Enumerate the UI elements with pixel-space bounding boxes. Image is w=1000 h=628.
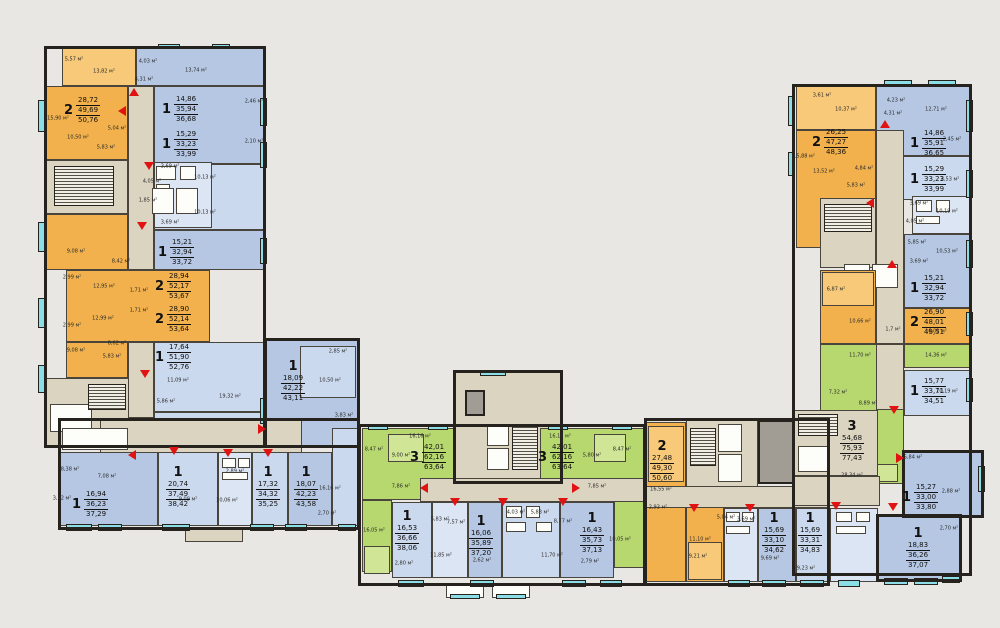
room-area-label: 10,13 м² [194, 211, 216, 216]
balcony [966, 378, 973, 402]
balcony [285, 524, 307, 531]
stairs-icon [88, 384, 126, 410]
room-area-label: 2,46 м² [245, 100, 264, 105]
apartment-rooms-count: 3 [410, 451, 419, 464]
apartment-areas: 28,7249,6950,76 [76, 96, 100, 125]
entrance-arrow-icon [128, 450, 136, 460]
balcony [38, 222, 46, 252]
room-area-label: 19,32 м² [219, 395, 241, 400]
balcony [978, 466, 985, 492]
apartment-areas: 15,7733,7134,51 [922, 377, 946, 406]
apartment-areas: 17,3234,3235,25 [256, 480, 280, 509]
entrance-arrow-icon [450, 498, 460, 506]
apartment-block [364, 546, 390, 574]
apartment-label[interactable]: 342,0162,1663,64 [410, 443, 446, 472]
balcony [38, 100, 46, 132]
room-area-label: 6,87 м² [827, 288, 846, 293]
apartment-rooms-count: 1 [588, 512, 597, 525]
entrance-arrow-icon [129, 88, 139, 96]
room-area-label: 28,34 м² [841, 474, 863, 479]
room-area-label: 3,69 м² [161, 165, 180, 170]
apartment-areas: 15,2933,2333,99 [174, 130, 198, 159]
apartment-label[interactable]: 118,0942,2243,11 [281, 360, 305, 403]
apartment-rooms-count: 1 [264, 466, 273, 479]
entrance-arrow-icon [498, 498, 508, 506]
room-area-label: 12,95 м² [93, 285, 115, 290]
apartment-areas: 14,8635,9136,65 [922, 129, 946, 158]
balcony [562, 580, 586, 587]
floor-plan: 5,57 м² 13,82 м² 4,03 м² 13,74 м² 4,31 м… [0, 0, 1000, 628]
entrance-arrow-icon [572, 483, 580, 493]
apartment-areas: 18,8336,2637,07 [906, 541, 930, 570]
apartment-areas: 15,2132,9433,72 [922, 274, 946, 303]
room-area-label: 3,83 м² [335, 414, 354, 419]
entrance-arrow-icon [880, 120, 890, 128]
apartment-areas: 28,9452,1753,67 [167, 272, 191, 301]
entrance-arrow-icon [887, 260, 897, 268]
balcony [612, 424, 632, 430]
apartment-rooms-count: 1 [902, 491, 911, 504]
room-area-label: 10,05 м² [609, 538, 631, 543]
room-area-label: 9,69 м² [761, 557, 780, 562]
balcony [158, 44, 180, 49]
apartment-label[interactable]: 115,2132,9433,72 [158, 238, 194, 267]
corridor [876, 344, 904, 410]
entrance-arrow-icon [745, 504, 755, 512]
apartment-rooms-count: 2 [155, 313, 164, 326]
balcony [762, 580, 786, 587]
apartment-rooms-count: 1 [403, 510, 412, 523]
room-area-label: 5,80 м² [583, 454, 602, 459]
balcony [480, 370, 506, 376]
apartment-rooms-count: 1 [289, 360, 298, 373]
room-area-label: 13,52 м² [813, 170, 835, 175]
apartment-areas: 15,6933,1034,62 [762, 526, 786, 555]
apartment-rooms-count: 2 [910, 316, 919, 329]
room-area-label: 14,36 м² [925, 354, 947, 359]
apartment-label[interactable]: 226,2547,2748,36 [812, 128, 848, 157]
room-area-label: 2,85 м² [329, 350, 348, 355]
apartment-areas: 15,2733,0033,80 [914, 483, 938, 512]
apartment-block[interactable] [614, 500, 644, 568]
room-area-label: 8,38 м² [61, 468, 80, 473]
room-area-label: 10,66 м² [849, 320, 871, 325]
room-area-label: 4,23 м² [887, 99, 906, 104]
apartment-rooms-count: 2 [155, 280, 164, 293]
apartment-rooms-count: 1 [174, 466, 183, 479]
apartment-label[interactable]: 115,2933,2333,99 [162, 130, 198, 159]
room-area-label: 7,85 м² [588, 485, 607, 490]
elevator [487, 448, 509, 470]
apartment-rooms-count: 1 [162, 138, 171, 151]
room-area-label: 3,52 м² [53, 497, 72, 502]
room-area-label: 4,31 м² [135, 78, 154, 83]
entrance-arrow-icon [118, 106, 126, 116]
room-area-label: 13,82 м² [93, 70, 115, 75]
bathroom-fixture [222, 458, 236, 468]
apartment-label[interactable]: 227,4849,3050,60 [650, 440, 674, 483]
balcony [928, 80, 956, 86]
room-area-label: 11,09 м² [167, 379, 189, 384]
balcony [38, 298, 46, 328]
bathroom-fixture [836, 512, 852, 522]
room-area-label: 8,47 м² [613, 448, 632, 453]
room-area-label: 8,62 м² [108, 342, 127, 347]
entrance-arrow-icon [137, 222, 147, 230]
room-area-label: 10,50 м² [319, 379, 341, 384]
apartment-areas: 16,0635,8937,20 [469, 529, 493, 558]
stairs-icon [824, 204, 872, 232]
room-area-label: 3,61 м² [813, 94, 832, 99]
apartment-areas: 18,0742,2343,58 [294, 480, 318, 509]
entrance-arrow-icon [420, 483, 428, 493]
balcony [966, 312, 973, 336]
apartment-rooms-count: 1 [910, 137, 919, 150]
apartment-label[interactable]: 116,9436,2337,29 [72, 490, 108, 519]
room-area-label: 8,47 м² [365, 448, 384, 453]
balcony [66, 524, 92, 531]
apartment-areas: 54,6875,9377,43 [840, 434, 864, 463]
room-area-label: 8,89 м² [859, 402, 878, 407]
apartment-areas: 42,0162,1663,64 [550, 443, 574, 472]
apartment-label[interactable]: 115,7733,7134,51 [910, 377, 946, 406]
apartment-areas: 17,6451,9052,76 [167, 343, 191, 372]
apartment-areas: 27,4849,3050,60 [650, 454, 674, 483]
room-area-label: 8,42 м² [112, 260, 131, 265]
room-area-label: 7,08 м² [98, 475, 117, 480]
entrance-arrow-icon [888, 503, 898, 511]
room-area-label: 5,83 м² [531, 511, 550, 516]
bathroom-fixture [536, 522, 552, 532]
apartment-label[interactable]: 115,6933,3134,83 [798, 512, 822, 555]
room-area-label: 7,86 м² [392, 485, 411, 490]
room-area-label: 9,00 м² [392, 454, 411, 459]
balcony [548, 424, 568, 430]
room-area-label: 9,08 м² [67, 349, 86, 354]
apartment-areas: 26,2547,2748,36 [824, 128, 848, 157]
apartment-label[interactable]: 115,6933,1034,62 [762, 512, 786, 555]
room-area-label: 4,05 м² [143, 180, 162, 185]
room-area-label: 10,50 м² [67, 136, 89, 141]
entrance-porch [185, 528, 243, 542]
balcony [398, 580, 424, 587]
balcony [838, 580, 860, 587]
room-area-label: 4,31 м² [884, 112, 903, 117]
apartment-rooms-count: 2 [658, 440, 667, 453]
bathroom-cluster [432, 502, 468, 578]
apartment-rooms-count: 2 [812, 136, 821, 149]
apartment-rooms-count: 1 [914, 527, 923, 540]
room-area-label: 5,83 м² [97, 146, 116, 151]
stairs-icon [798, 414, 838, 436]
apartment-label[interactable]: 115,2933,2333,99 [910, 165, 946, 194]
room-area-label: 11,70 м² [849, 354, 871, 359]
apartment-areas: 16,9436,2337,29 [84, 490, 108, 519]
room-area-label: 2,62 м² [473, 559, 492, 564]
apartment-label[interactable]: 342,0162,1663,64 [538, 443, 574, 472]
room-area-label: 4,84 м² [855, 167, 874, 172]
balcony [914, 578, 938, 585]
apartment-areas: 28,9052,1453,64 [167, 305, 191, 334]
room-area-label: 2,88 м² [942, 490, 961, 495]
room-area-label: 4,03 м² [507, 511, 526, 516]
apartment-rooms-count: 3 [538, 451, 547, 464]
room-area-label: 11,70 м² [541, 554, 563, 559]
room-area-label: 3,69 м² [161, 221, 180, 226]
apartment-areas: 16,5336,6638,06 [395, 524, 419, 553]
balcony [162, 524, 190, 531]
entrance-arrow-icon [223, 449, 233, 457]
entrance-arrow-icon [866, 198, 874, 208]
room-area-label: 2,99 м² [63, 276, 82, 281]
apartment-label[interactable]: 117,6451,9052,76 [155, 343, 191, 372]
elevator [487, 424, 509, 446]
apartment-rooms-count: 1 [910, 173, 919, 186]
apartment-label[interactable]: 228,7249,6950,76 [64, 96, 100, 125]
entrance-arrow-icon [831, 502, 841, 510]
apartment-rooms-count: 2 [64, 104, 73, 117]
apartment-label[interactable]: 116,4335,7337,13 [580, 512, 604, 555]
apartment-label[interactable]: 116,5336,6638,06 [395, 510, 419, 553]
apartment-label[interactable]: 114,8635,9136,65 [910, 129, 946, 158]
room-area-label: 2,10 м² [245, 140, 264, 145]
entrance-arrow-icon [896, 453, 904, 463]
balcony [966, 170, 973, 198]
balcony [788, 96, 795, 126]
balcony [368, 424, 388, 430]
bathroom-fixture [238, 458, 250, 468]
room-area-label: 7,32 м² [829, 391, 848, 396]
balcony [966, 240, 973, 268]
room-area-label: 8,77 м² [554, 520, 573, 525]
apartment-label[interactable]: 117,3234,3235,25 [256, 466, 280, 509]
bathroom-fixture [836, 526, 866, 534]
room-area-label: 2,70 м² [940, 527, 959, 532]
ventilation-shaft [465, 390, 485, 416]
apartment-rooms-count: 1 [806, 512, 815, 525]
entrance-arrow-icon [689, 504, 699, 512]
room-area-label: 5,83 м² [103, 355, 122, 360]
room-area-label: 13,74 м² [185, 69, 207, 74]
apartment-block[interactable] [62, 48, 136, 86]
apartment-label[interactable]: 120,7437,4938,42 [166, 466, 190, 509]
room-area-label: 2,70 м² [318, 512, 337, 517]
room-area-label: 10,53 м² [936, 250, 958, 255]
balcony [728, 580, 750, 587]
corridor [128, 342, 154, 418]
balcony [966, 100, 973, 132]
room-area-label: 9,23 м² [797, 567, 816, 572]
apartment-rooms-count: 1 [155, 351, 164, 364]
room-area-label: 1,85 м² [139, 199, 158, 204]
entrance-arrow-icon [144, 162, 154, 170]
room-area-label: 12,99 м² [92, 317, 114, 322]
utility-room [798, 446, 830, 472]
apartment-label[interactable]: 354,6875,9377,43 [840, 420, 864, 463]
room-area-label: 16,05 м² [363, 529, 385, 534]
apartment-areas: 26,9048,0149,51 [922, 308, 946, 337]
room-area-label: 10,06 м² [216, 499, 238, 504]
balcony [884, 80, 912, 86]
apartment-label[interactable]: 118,0742,2343,58 [294, 466, 318, 509]
apartment-label[interactable]: 116,0635,8937,20 [469, 515, 493, 558]
apartment-areas: 15,2132,9433,72 [170, 238, 194, 267]
room-area-label: 9,21 м² [689, 555, 708, 560]
apartment-areas: 15,6933,3134,83 [798, 526, 822, 555]
apartment-label[interactable]: 115,2733,0033,80 [902, 483, 938, 512]
room-area-label: 5,04 м² [717, 516, 736, 521]
apartment-rooms-count: 3 [848, 420, 857, 433]
room-area-label: 2,89 м² [226, 470, 245, 475]
balcony [250, 524, 274, 531]
utility-room [62, 428, 128, 450]
room-area-label: 4,05 м² [906, 220, 925, 225]
apartment-areas: 18,0942,2243,11 [281, 374, 305, 403]
apartment-areas: 16,4335,7337,13 [580, 526, 604, 555]
apartment-areas: 42,0162,1663,64 [422, 443, 446, 472]
room-area-label: 5,86 м² [157, 400, 176, 405]
room-area-label: 5,57 м² [65, 58, 84, 63]
balcony [942, 576, 960, 583]
balcony [260, 238, 267, 264]
entrance-arrow-icon [263, 449, 273, 457]
apartment-block [688, 542, 722, 580]
apartment-areas: 20,7437,4938,42 [166, 480, 190, 509]
room-area-label: 16,16 м² [409, 435, 431, 440]
room-area-label: 1,71 м² [130, 289, 149, 294]
balcony [212, 44, 230, 49]
balcony [450, 594, 480, 599]
room-area-label: 5,83 м² [847, 184, 866, 189]
balcony [338, 524, 356, 531]
apartment-rooms-count: 1 [302, 466, 311, 479]
balcony [496, 594, 526, 599]
apartment-label[interactable]: 228,9452,1753,67 [155, 272, 191, 301]
room-area-label: 10,19 м² [936, 210, 958, 215]
balcony [260, 142, 267, 168]
bathroom-fixture [726, 526, 750, 534]
room-area-label: 10,37 м² [835, 108, 857, 113]
bathroom-fixture [506, 522, 526, 532]
balcony [884, 578, 908, 585]
room-area-label: 3,69 м² [737, 518, 756, 523]
room-area-label: 3,69 м² [910, 202, 929, 207]
room-area-label: 2,93 м² [649, 506, 668, 511]
entrance-arrow-icon [169, 447, 179, 455]
entrance-arrow-icon [889, 406, 899, 414]
corridor [876, 130, 904, 344]
apartment-label[interactable]: 114,8635,9436,68 [162, 95, 198, 124]
balcony [600, 580, 622, 587]
entrance-arrow-icon [140, 370, 150, 378]
apartment-rooms-count: 1 [158, 246, 167, 259]
room-area-label: 2,80 м² [395, 562, 414, 567]
room-area-label: 9,08 м² [67, 250, 86, 255]
room-area-label: 5,84 м² [904, 456, 923, 461]
apartment-rooms-count: 1 [910, 385, 919, 398]
entrance-arrow-icon [558, 498, 568, 506]
room-area-label: 7,57 м² [447, 521, 466, 526]
balcony [38, 365, 46, 393]
room-area-label: 12,71 м² [925, 108, 947, 113]
apartment-areas: 14,8635,9436,68 [174, 95, 198, 124]
apartment-rooms-count: 1 [910, 282, 919, 295]
room-area-label: 1,7 м² [885, 328, 900, 333]
balcony [470, 580, 494, 587]
room-area-label: 11,10 м² [689, 538, 711, 543]
room-area-label: 10,13 м² [194, 176, 216, 181]
room-area-label: 5,04 м² [108, 127, 127, 132]
apartment-rooms-count: 1 [770, 512, 779, 525]
room-area-label: 3,69 м² [910, 260, 929, 265]
bathroom-fixture [856, 512, 870, 522]
stairs-icon [690, 428, 716, 466]
entrance-arrow-icon [258, 424, 266, 434]
apartment-rooms-count: 1 [72, 498, 81, 511]
apartment-label[interactable]: 115,2132,9433,72 [910, 274, 946, 303]
elevator [718, 424, 742, 452]
apartment-rooms-count: 1 [162, 103, 171, 116]
room-area-label: 1,71 м² [130, 309, 149, 314]
balcony [428, 424, 448, 430]
room-area-label: 16,16 м² [319, 487, 341, 492]
apartment-areas: 15,2933,2333,99 [922, 165, 946, 194]
room-area-label: 11,85 м² [430, 554, 452, 559]
balcony [98, 524, 122, 531]
apartment-label[interactable]: 228,9052,1453,64 [155, 305, 191, 334]
balcony [800, 580, 824, 587]
apartment-rooms-count: 1 [477, 515, 486, 528]
apartment-label[interactable]: 118,8336,2637,07 [906, 527, 930, 570]
elevator [718, 454, 742, 482]
balcony [260, 398, 267, 424]
stairs-icon [54, 166, 114, 206]
stairs-icon [512, 424, 538, 470]
room-area-label: 2,79 м² [581, 560, 600, 565]
room-area-label: 5,85 м² [908, 241, 927, 246]
room-area-label: 16,15 м² [549, 435, 571, 440]
room-area-label: 4,03 м² [139, 60, 158, 65]
room-area-label: 2,99 м² [63, 324, 82, 329]
room-area-label: 16,55 м² [650, 488, 672, 493]
apartment-label[interactable]: 226,9048,0149,51 [910, 308, 946, 337]
